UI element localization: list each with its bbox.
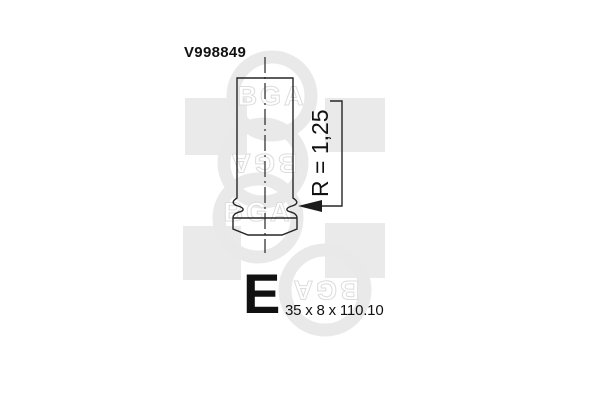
valve-dimensions-label: 35 x 8 x 110.10 — [285, 303, 383, 318]
radius-dimension-label: R = 1,25 — [309, 109, 332, 197]
valve-type-letter: E — [243, 266, 280, 322]
valve-drawing — [0, 0, 600, 400]
valve-diagram-canvas: BGA BGA BGA BGA V998849 R = 1,25 E 35 x … — [0, 0, 600, 400]
part-number-label: V998849 — [184, 45, 246, 60]
radius-arrowhead — [298, 200, 322, 212]
